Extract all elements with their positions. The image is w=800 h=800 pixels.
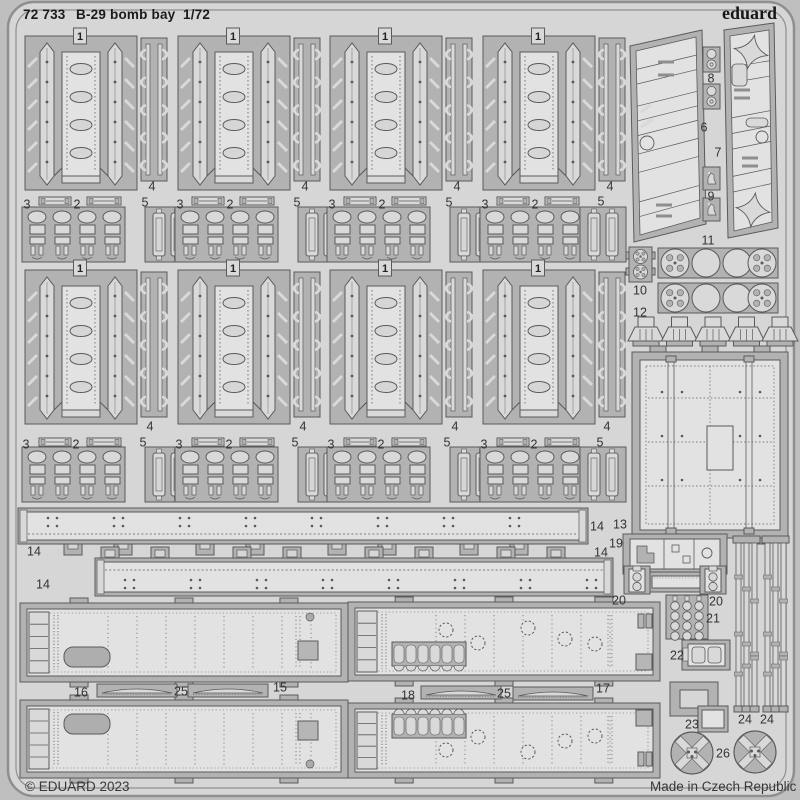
part-label: 4 xyxy=(300,420,307,434)
part-26-wheel xyxy=(734,731,776,773)
part-label: 4 xyxy=(604,420,611,434)
part-3-shackles xyxy=(22,447,125,502)
part-label: 14 xyxy=(27,545,41,559)
part-18-door-panel xyxy=(348,698,660,783)
part-4-hook-strip xyxy=(599,272,625,417)
copyright-text: © EDUARD 2023 xyxy=(25,779,130,794)
part-15-door-panel xyxy=(20,598,348,687)
part-5-strips xyxy=(580,447,626,502)
part-label: 4 xyxy=(302,180,309,194)
part-label: 17 xyxy=(596,682,610,696)
part-label: 22 xyxy=(670,649,684,663)
part-label: 2 xyxy=(73,438,80,452)
part-26-wheel xyxy=(671,732,713,774)
part-label: 3 xyxy=(24,198,31,212)
part-label: 14 xyxy=(594,546,608,560)
part-8-fitting xyxy=(703,47,720,72)
part-12-brackets xyxy=(628,317,798,346)
part-label: 5 xyxy=(140,436,147,450)
part-1-rib-panel xyxy=(25,36,137,190)
part-3-shackles xyxy=(327,447,430,502)
part-label: 8 xyxy=(708,72,715,86)
part-label: 14 xyxy=(590,520,604,534)
part-3-shackles xyxy=(22,207,125,262)
part-1-number-tag: 1 xyxy=(532,28,545,44)
part-tag-label: 1 xyxy=(535,263,541,275)
part-1-number-tag: 1 xyxy=(74,28,87,44)
part-label: 5 xyxy=(597,436,604,450)
part-tag-label: 1 xyxy=(230,263,236,275)
part-tag-label: 1 xyxy=(382,263,388,275)
part-1-number-tag: 1 xyxy=(227,260,240,276)
part-1-number-tag: 1 xyxy=(227,28,240,44)
part-4-hook-strip xyxy=(141,272,167,417)
part-label: 3 xyxy=(23,438,30,452)
part-1-number-tag: 1 xyxy=(532,260,545,276)
part-label: 5 xyxy=(446,196,453,210)
part-tag-label: 1 xyxy=(382,31,388,43)
part-label: 2 xyxy=(227,198,234,212)
part-11-wheel-bar xyxy=(658,283,778,313)
part-4-hook-strip xyxy=(446,38,472,181)
part-label: 24 xyxy=(738,713,752,727)
part-3-shackles xyxy=(175,447,278,502)
part-label: 2 xyxy=(378,438,385,452)
part-tag-label: 1 xyxy=(77,263,83,275)
part-4-hook-strip xyxy=(294,272,320,417)
part-2-strip xyxy=(192,438,224,446)
pe-sheet-graphic: 4444333322225555444433332222555586791110… xyxy=(0,0,800,800)
sheet-scale: 1/72 xyxy=(183,7,210,22)
catalog-number: 72 733 xyxy=(23,7,66,22)
brand-logo: eduard xyxy=(722,3,777,23)
part-16-door-panel xyxy=(20,695,348,783)
part-7-panel xyxy=(724,23,778,238)
part-10-wheels xyxy=(626,247,655,282)
part-1-rib-panel xyxy=(483,270,595,424)
part-1-number-tag: 1 xyxy=(379,28,392,44)
part-label: 15 xyxy=(273,681,287,695)
part-tag-label: 1 xyxy=(535,31,541,43)
part-1-rib-panel xyxy=(483,36,595,190)
part-label: 4 xyxy=(149,180,156,194)
part-4-hook-strip xyxy=(446,272,472,417)
part-1-rib-panel xyxy=(330,270,442,424)
part-1-rib-panel xyxy=(25,270,137,424)
part-2-strip xyxy=(87,438,121,446)
part-label: 4 xyxy=(147,420,154,434)
part-label: 3 xyxy=(176,438,183,452)
part-2-strip xyxy=(39,438,71,446)
part-2-strip xyxy=(392,197,426,205)
part-2-strip xyxy=(344,197,376,205)
part-label: 18 xyxy=(401,689,415,703)
part-5-strips xyxy=(580,207,626,262)
part-tag-label: 1 xyxy=(77,31,83,43)
part-label: 5 xyxy=(292,436,299,450)
part-label: 11 xyxy=(702,234,715,248)
part-label: 4 xyxy=(454,180,461,194)
part-2-strip xyxy=(545,438,579,446)
part-17-door-panel xyxy=(348,597,660,686)
part-label: 3 xyxy=(482,198,489,212)
part-4-hook-strip xyxy=(599,38,625,181)
part-label: 13 xyxy=(613,518,627,532)
part-label: 12 xyxy=(633,306,647,320)
part-label: 5 xyxy=(142,196,149,210)
made-in-text: Made in Czech Republic xyxy=(650,779,797,794)
part-2-strip xyxy=(87,197,121,205)
part-25-lens-strip xyxy=(97,684,177,697)
part-13-floor-panel xyxy=(632,346,788,544)
part-2-strip xyxy=(192,197,224,205)
part-3-shackles xyxy=(175,207,278,262)
part-label: 5 xyxy=(294,196,301,210)
part-11-wheel-bar xyxy=(658,248,778,278)
part-label: 20 xyxy=(612,594,626,608)
part-label: 2 xyxy=(226,438,233,452)
part-9-fitting xyxy=(703,167,720,190)
part-2-strip xyxy=(497,438,529,446)
part-1-rib-panel xyxy=(330,36,442,190)
part-1-number-tag: 1 xyxy=(379,260,392,276)
part-label: 16 xyxy=(74,686,88,700)
part-2-strip xyxy=(240,438,274,446)
part-label: 25 xyxy=(174,685,188,699)
part-label: 20 xyxy=(709,595,723,609)
part-1-rib-panel xyxy=(178,270,290,424)
part-3-shackles xyxy=(480,207,583,262)
part-label: 24 xyxy=(760,713,774,727)
part-21-grommets xyxy=(666,595,708,640)
part-label: 21 xyxy=(706,612,720,626)
part-2-strip xyxy=(344,438,376,446)
part-3-shackles xyxy=(480,447,583,502)
part-25-lens-strip xyxy=(188,684,268,697)
part-label: 3 xyxy=(329,198,336,212)
sheet-title: B-29 bomb bay xyxy=(76,7,176,22)
part-20-fitting xyxy=(624,566,650,594)
part-label: 3 xyxy=(481,438,488,452)
part-20-fitting xyxy=(700,566,726,594)
part-2-strip xyxy=(39,197,71,205)
part-2-strip xyxy=(240,197,274,205)
part-label: 26 xyxy=(716,747,730,761)
part-4-hook-strip xyxy=(294,38,320,181)
part-24-strips xyxy=(762,536,789,712)
part-25-lens-strip xyxy=(513,687,593,700)
part-24-strips xyxy=(733,536,760,712)
part-label: 2 xyxy=(532,198,539,212)
part-25-lens-strip xyxy=(421,686,501,699)
part-label: 3 xyxy=(177,198,184,212)
part-8-fitting xyxy=(703,84,720,109)
part-3-shackles xyxy=(327,207,430,262)
part-label: 19 xyxy=(609,537,623,551)
part-label: 9 xyxy=(708,190,715,204)
photoetch-fret-sheet: 4444333322225555444433332222555586791110… xyxy=(0,0,800,800)
part-1-rib-panel xyxy=(178,36,290,190)
part-label: 4 xyxy=(607,180,614,194)
part-label: 25 xyxy=(497,687,511,701)
part-label: 3 xyxy=(328,438,335,452)
part-label: 5 xyxy=(598,195,605,209)
part-label: 6 xyxy=(701,121,708,135)
part-label: 7 xyxy=(715,146,722,160)
part-2-strip xyxy=(497,197,529,205)
part-22-boxes xyxy=(682,640,730,670)
part-tag-label: 1 xyxy=(230,31,236,43)
part-label: 4 xyxy=(452,420,459,434)
part-4-hook-strip xyxy=(141,38,167,181)
part-6-panel xyxy=(630,30,706,242)
part-2-strip xyxy=(545,197,579,205)
part-label: 10 xyxy=(633,284,647,298)
part-2-strip xyxy=(392,438,426,446)
part-1-number-tag: 1 xyxy=(74,260,87,276)
part-label: 2 xyxy=(379,198,386,212)
parts-layer: 4444333322225555444433332222555586791110… xyxy=(0,0,800,800)
part-label: 2 xyxy=(531,438,538,452)
part-label: 23 xyxy=(685,718,699,732)
part-label: 2 xyxy=(74,198,81,212)
part-label: 14 xyxy=(36,578,50,592)
part-label: 5 xyxy=(444,436,451,450)
